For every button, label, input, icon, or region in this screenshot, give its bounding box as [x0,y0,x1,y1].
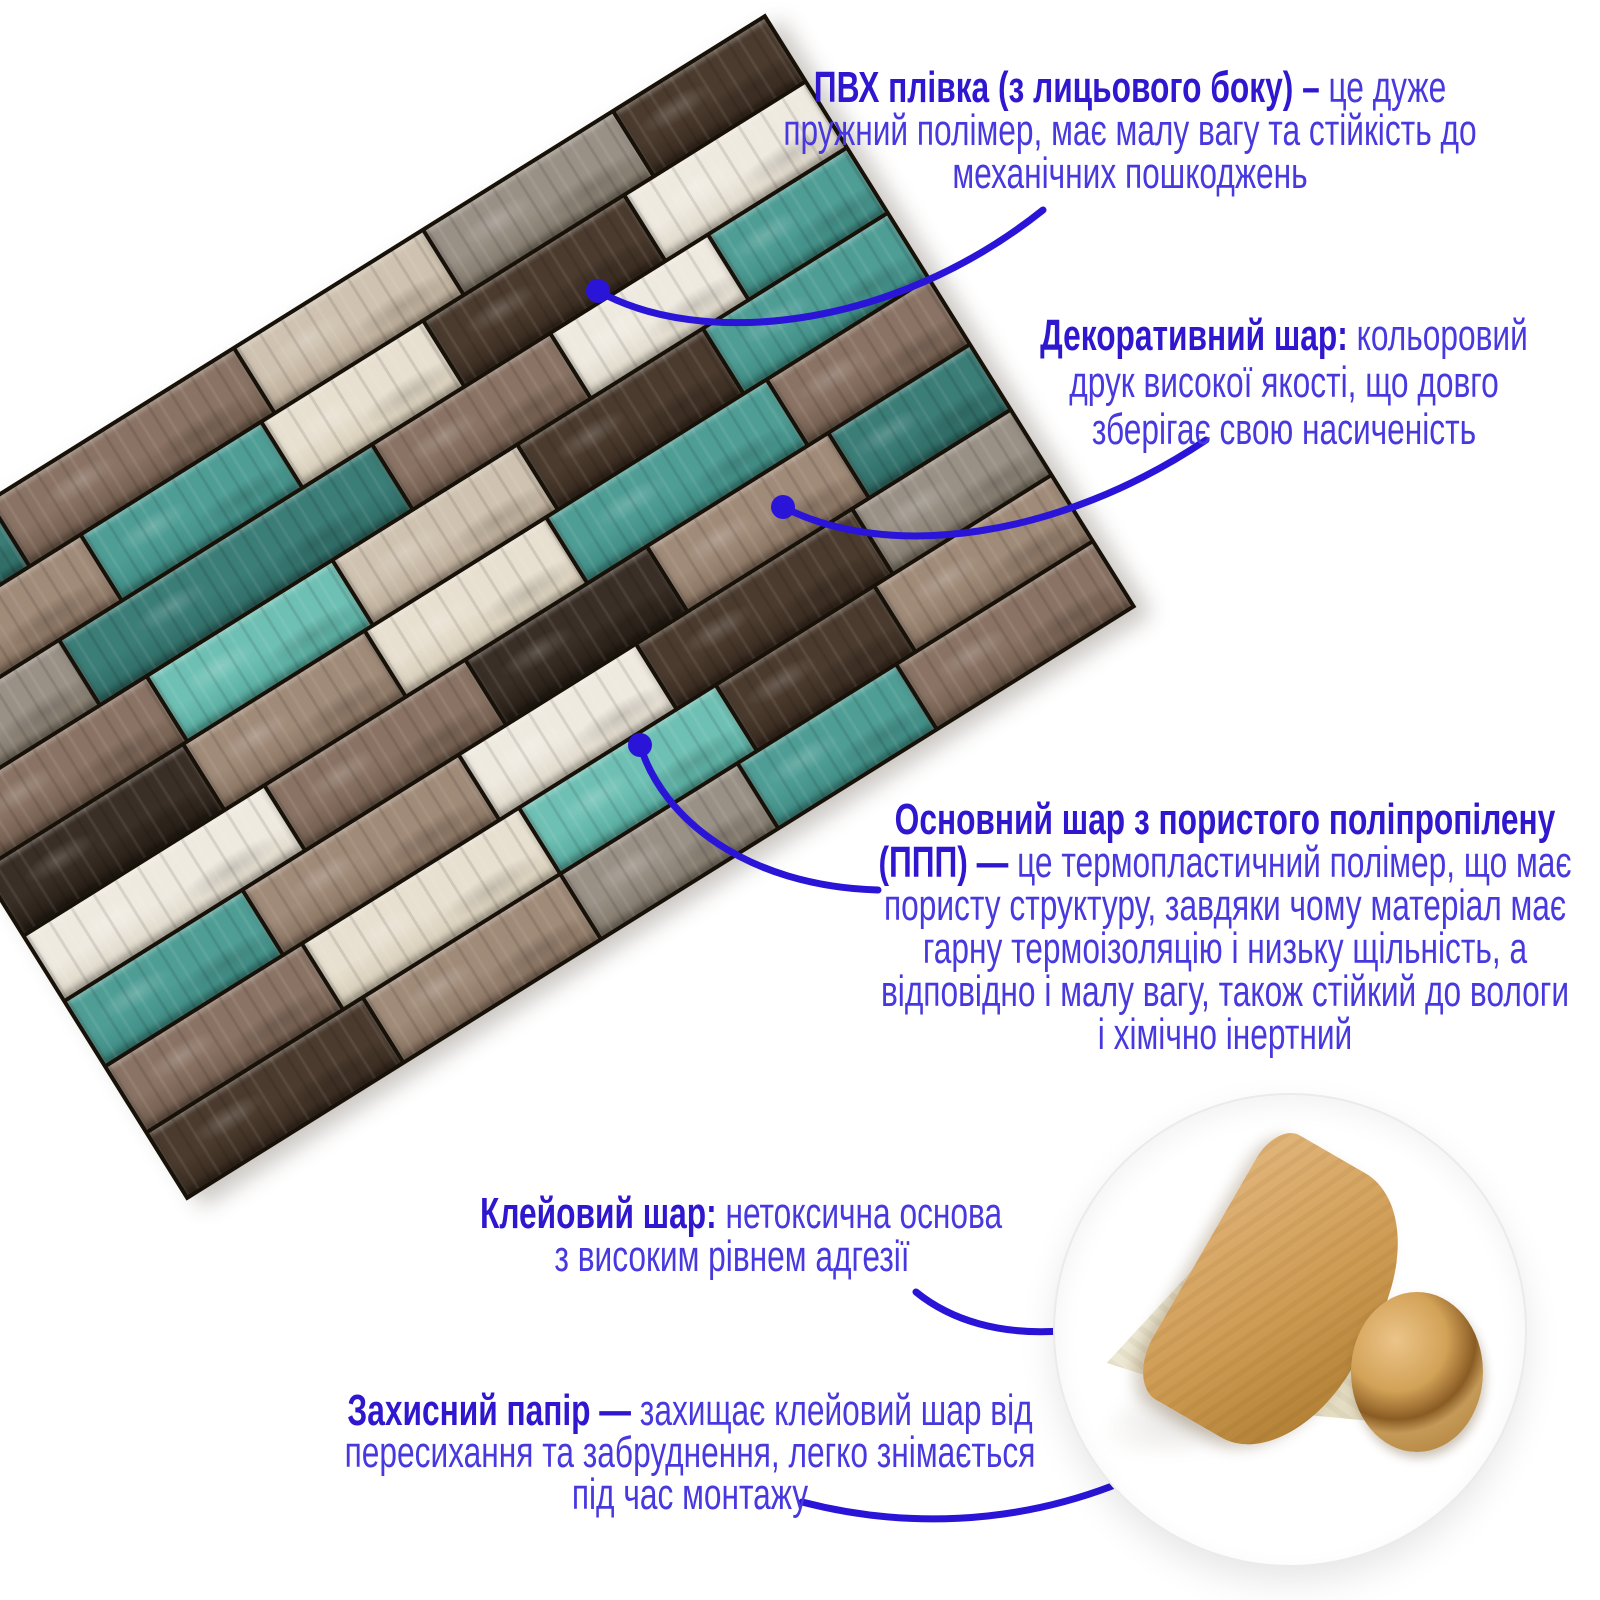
protective-paper-curl [1351,1292,1483,1452]
annotation-protective-paper: Захисний папір — захищає клейовий шар ві… [316,1390,1065,1516]
annotation-line: пружний полімер, має малу вагу та стійкі… [734,109,1526,152]
annotation-line: Декоративний шар: кольоровий [1010,312,1557,359]
annotation-adhesive-layer: Клейовий шар: нетоксична основа з високи… [480,1192,984,1278]
annotation-pvc-film: ПВХ плівка (з лицьового боку) – це дуже … [734,66,1526,195]
annotation-line: відповідно і малу вагу, також стійкий до… [865,970,1585,1013]
annotation-line: зберігає свою насиченість [1010,406,1557,453]
annotation-line: Основний шар з пористого поліпропілену [865,798,1585,841]
annotation-line: (ППП) — це термопластичний полімер, що м… [865,841,1585,884]
annotation-decorative-layer: Декоративний шар: кольоровий друк високо… [1010,312,1557,453]
annotation-line: Захисний папір — захищає клейовий шар ві… [316,1390,1065,1432]
annotation-line: пересихання та забруднення, легко знімає… [316,1432,1065,1474]
annotation-base-layer: Основний шар з пористого поліпропілену (… [865,798,1585,1056]
annotation-line: пористу структуру, завдяки чому матеріал… [865,884,1585,927]
annotation-line: Клейовий шар: нетоксична основа [480,1192,984,1235]
annotation-line: ПВХ плівка (з лицьового боку) – це дуже [734,66,1526,109]
annotation-line: гарну термоізоляцію і низьку щільність, … [865,927,1585,970]
annotation-line: під час монтажу [316,1474,1065,1516]
annotation-line: механічних пошкоджень [734,152,1526,195]
annotation-line: з високим рівнем адгезії [480,1235,984,1278]
annotation-line: друк високої якості, що довго [1010,359,1557,406]
backing-photo-vignette [1055,1095,1525,1565]
annotation-line: і хімічно інертний [865,1013,1585,1056]
infographic-page: { "colors": { "accent_title": "#2e17cf",… [0,0,1600,1600]
